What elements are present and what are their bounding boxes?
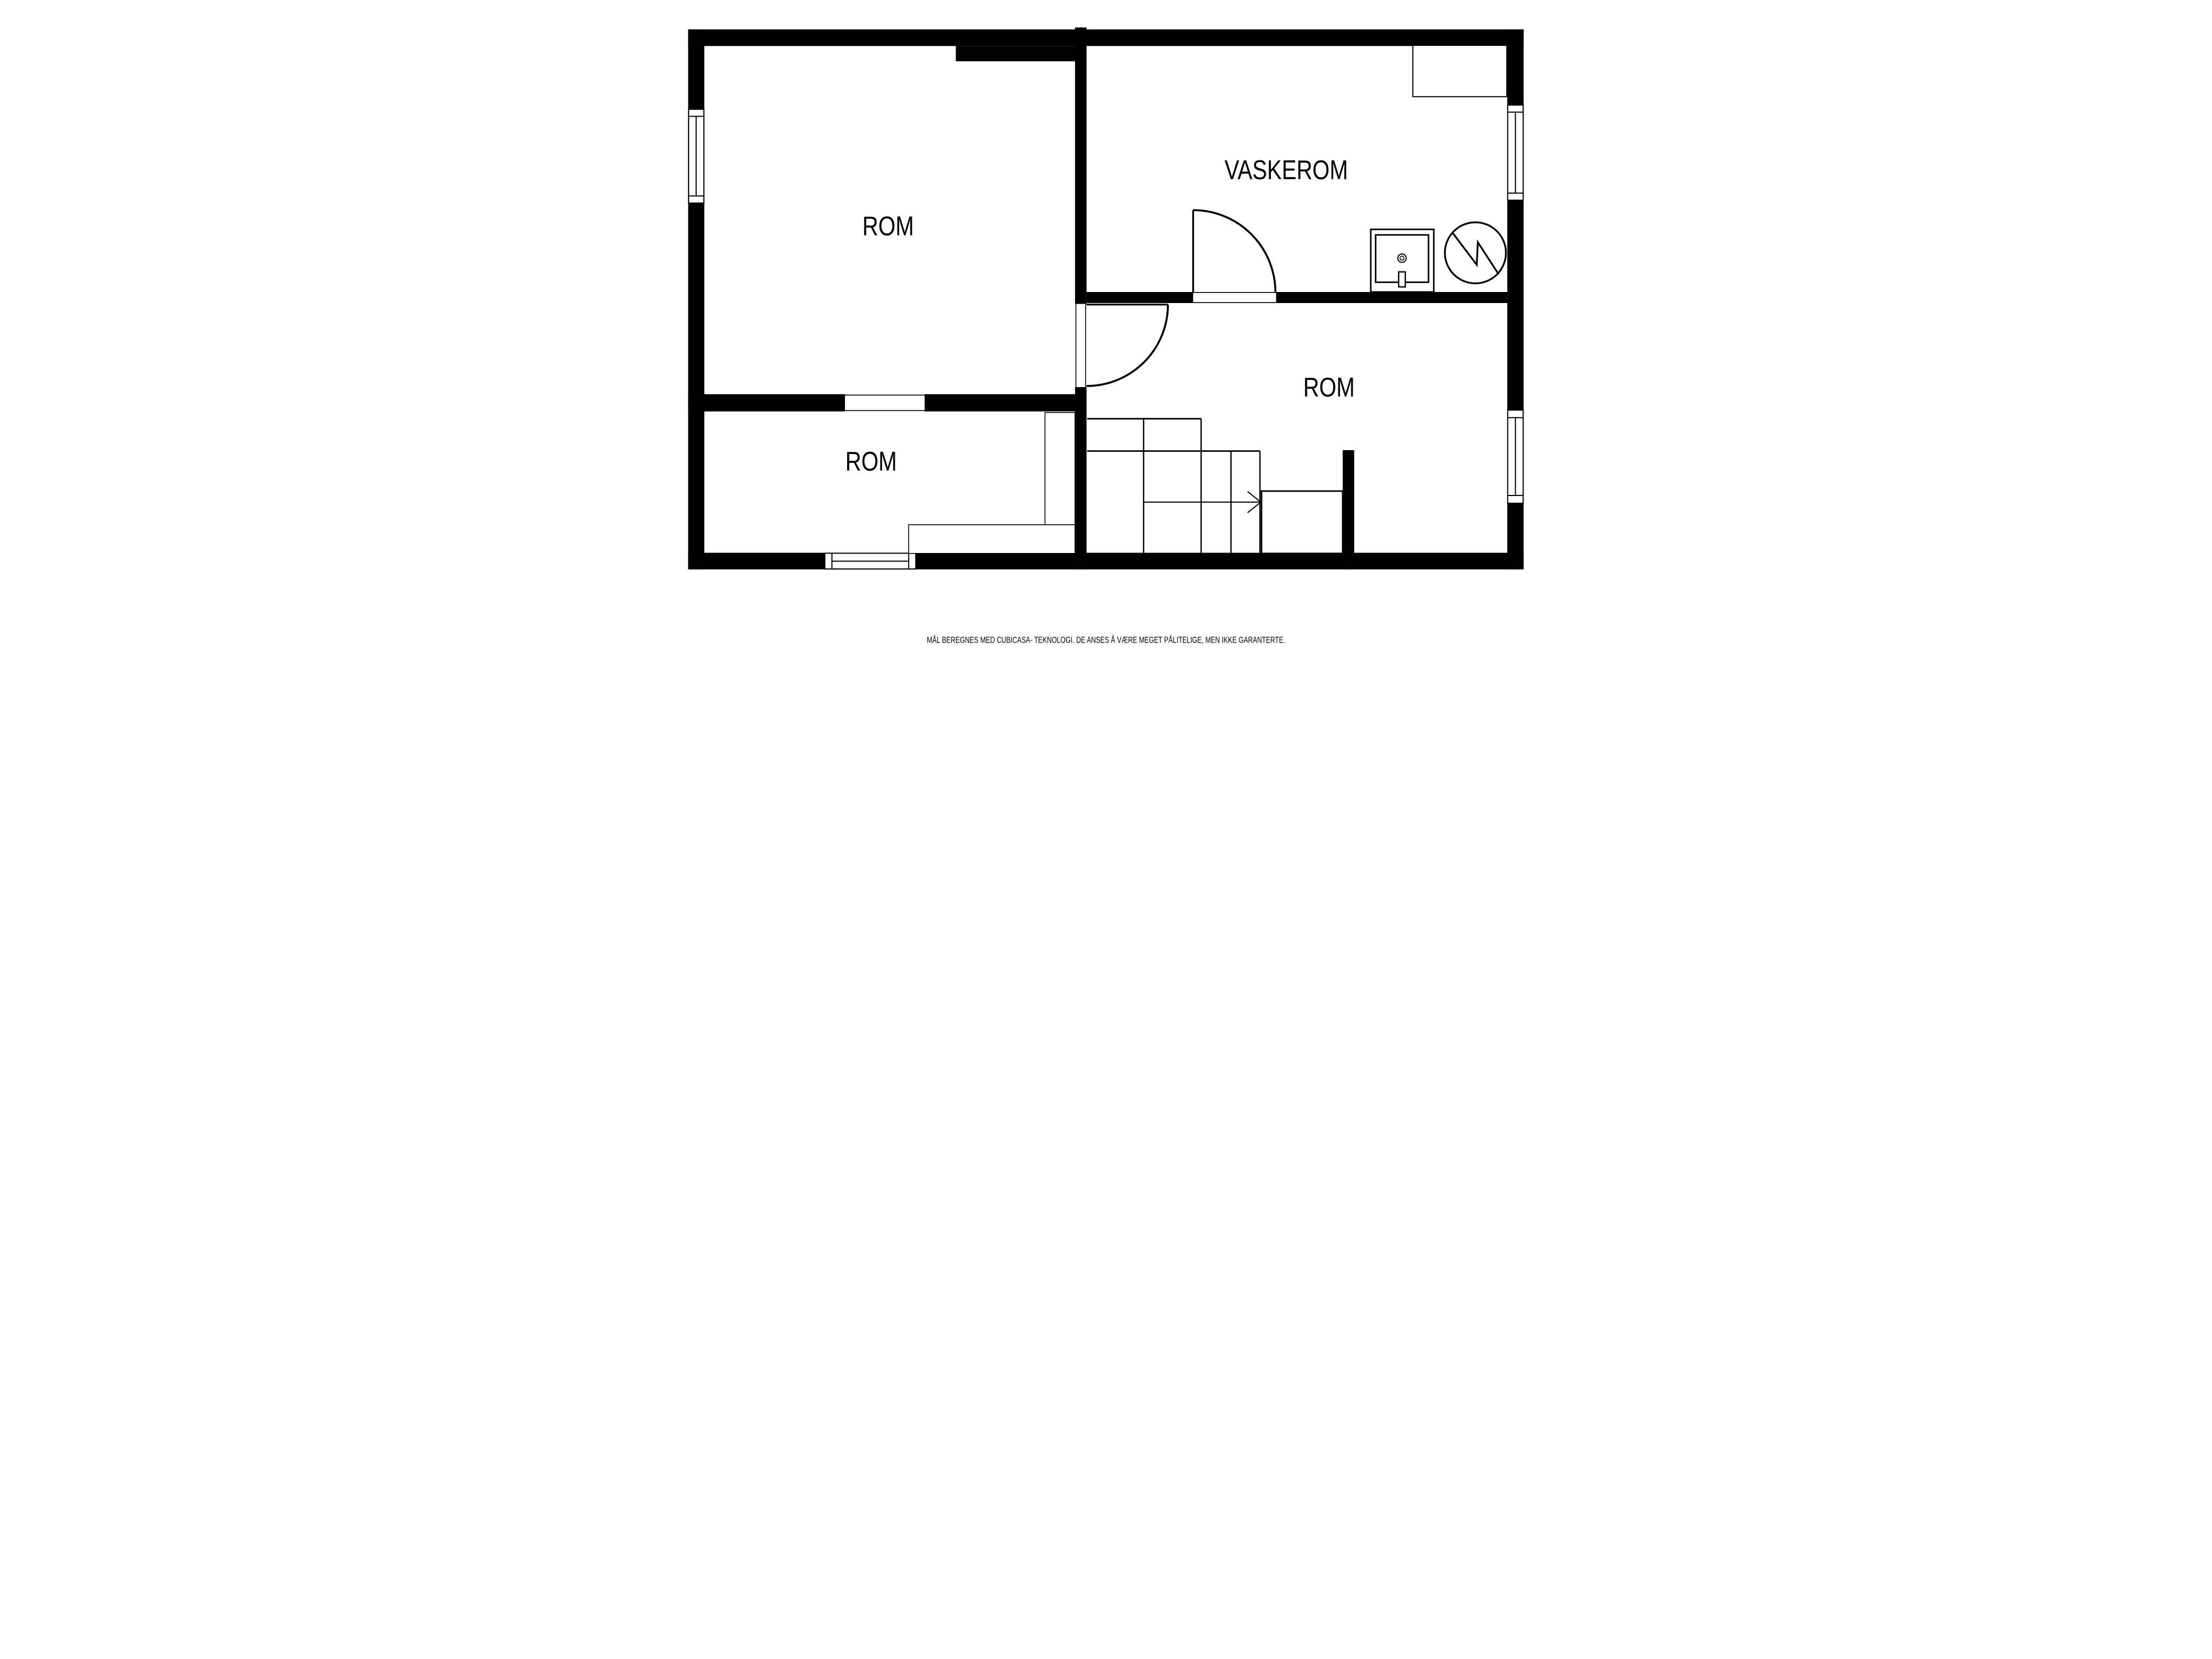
window-right-wall-upper: [1507, 105, 1523, 200]
divider-wall-lower: [1075, 387, 1087, 570]
floor-plan-svg: ROM VASKEROM ROM ROM MÅL BEREGNES MED CU…: [664, 0, 1548, 664]
window-bottom-wall: [825, 553, 916, 568]
hall-door: [1087, 305, 1168, 386]
stairs: [1087, 419, 1261, 552]
room-label-bottom-left: ROM: [846, 447, 897, 477]
vaskerom-door: [1193, 210, 1276, 293]
window-right-wall-lower: [1507, 410, 1523, 503]
sink-icon: [1371, 229, 1434, 292]
bottom-left-room-wardrobe: [1045, 413, 1075, 525]
divider-wall-stub-top: [1075, 28, 1087, 30]
windows: [688, 105, 1523, 569]
footer-disclaimer: MÅL BEREGNES MED CUBICASA- TEKNOLOGI. DE…: [927, 634, 1285, 645]
hall-door-arc: [1087, 305, 1168, 386]
vaskerom-door-arc: [1193, 210, 1276, 293]
bottom-left-room-closet: [909, 525, 1075, 554]
stair-hall-wall-stub: [1343, 450, 1354, 570]
outer-wall-top-thick-segment: [956, 46, 1075, 61]
stairs-direction-arrow: [1144, 492, 1261, 513]
room-labels: ROM VASKEROM ROM ROM: [846, 155, 1355, 477]
floor-plan: ROM VASKEROM ROM ROM MÅL BEREGNES MED CU…: [664, 0, 1548, 664]
outer-wall-bottom: [688, 553, 1524, 570]
vaskerom-bottom-wall-left: [1087, 292, 1193, 303]
outer-wall-top: [688, 29, 1524, 46]
water-heater-icon: [1445, 222, 1506, 283]
divider-wall-upper: [1075, 29, 1087, 304]
room-label-vaskerom: VASKEROM: [1224, 155, 1348, 185]
sink-faucet: [1399, 272, 1405, 287]
vaskerom-bottom-wall-right: [1276, 292, 1507, 303]
walls: [688, 28, 1524, 570]
room-label-right: ROM: [1303, 373, 1355, 403]
left-rooms-wall-left: [688, 394, 845, 411]
wall-openings: [845, 293, 1276, 411]
stair-hall-closet: [1261, 491, 1343, 554]
left-rooms-wall-right: [925, 394, 1075, 411]
room-label-top-left: ROM: [862, 212, 914, 242]
vaskerom-closet: [1413, 45, 1507, 97]
window-left-wall: [688, 109, 704, 204]
